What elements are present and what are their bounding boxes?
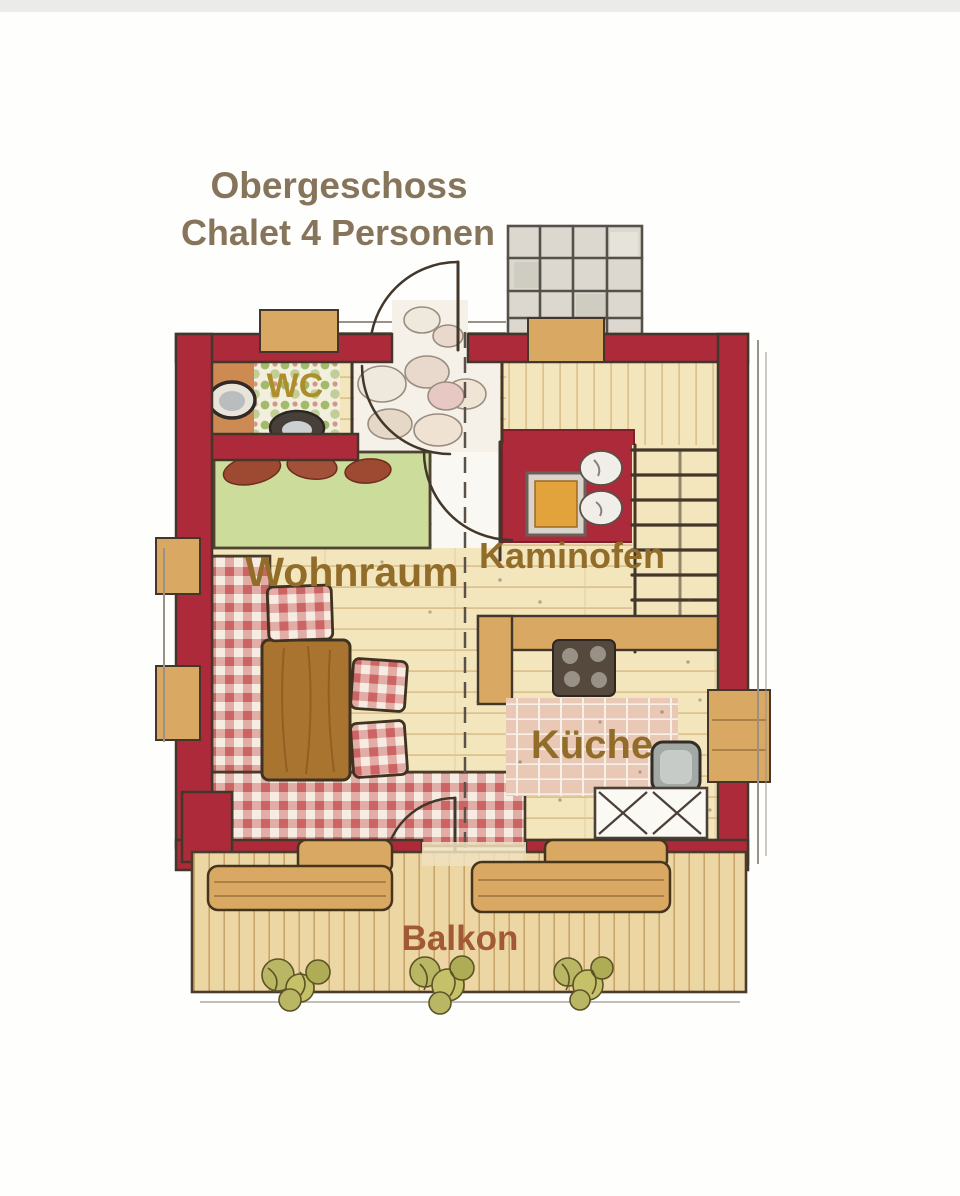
dining-table — [262, 640, 350, 780]
window-top-right — [528, 318, 604, 362]
window-left-lower — [156, 666, 200, 740]
floorplan-page: Obergeschoss Chalet 4 Personen — [0, 0, 960, 1196]
right-wall — [718, 334, 748, 864]
floorplan-title: Obergeschoss Chalet 4 Personen — [181, 165, 495, 253]
washbasin-icon — [209, 382, 255, 418]
window-right — [708, 690, 770, 782]
kueche-label: Küche — [531, 723, 653, 767]
bed — [214, 450, 430, 548]
hall-stone-floor — [354, 300, 500, 454]
window-top-wc — [260, 310, 338, 352]
scan-edge — [0, 0, 960, 12]
wc-lower-wall — [198, 434, 358, 460]
kaminofen-stove — [502, 430, 634, 542]
title-line-1: Obergeschoss — [210, 165, 467, 206]
window-left-upper — [156, 538, 200, 594]
cooktop-icon — [553, 640, 615, 696]
balkon-label: Balkon — [402, 919, 519, 958]
chair — [350, 658, 407, 712]
top-wall-right — [468, 334, 748, 362]
wohnraum-label: Wohnraum — [245, 549, 458, 595]
floorplan-drawing: Obergeschoss Chalet 4 Personen — [0, 0, 960, 1196]
kitchen-sink-icon — [652, 742, 700, 792]
title-line-2: Chalet 4 Personen — [181, 212, 495, 253]
kaminofen-label: Kaminofen — [479, 535, 665, 576]
chair — [350, 720, 408, 778]
wc-label: WC — [267, 367, 324, 405]
kitchen-cabinet — [595, 788, 707, 838]
